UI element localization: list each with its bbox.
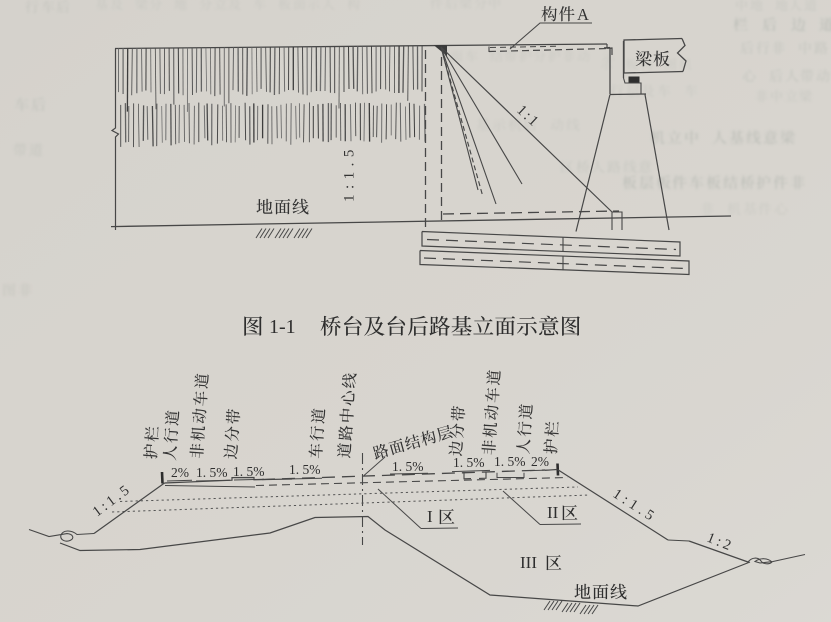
- svg-text:1. 5%: 1. 5%: [289, 462, 321, 477]
- svg-text:1:1.5: 1:1.5: [342, 144, 358, 202]
- svg-text:2%: 2%: [171, 465, 189, 480]
- svg-text:II: II: [547, 503, 559, 522]
- svg-text:1. 5%: 1. 5%: [494, 454, 526, 469]
- svg-text:2%: 2%: [531, 454, 549, 469]
- svg-text:A: A: [577, 5, 589, 24]
- svg-text:III: III: [520, 553, 537, 572]
- svg-text:1. 5%: 1. 5%: [453, 455, 485, 470]
- svg-text:1. 5%: 1. 5%: [392, 459, 424, 474]
- svg-text:1. 5%: 1. 5%: [233, 464, 265, 479]
- svg-text:1. 5%: 1. 5%: [196, 465, 228, 480]
- svg-text:1-1: 1-1: [269, 316, 296, 338]
- svg-text:I: I: [427, 507, 433, 526]
